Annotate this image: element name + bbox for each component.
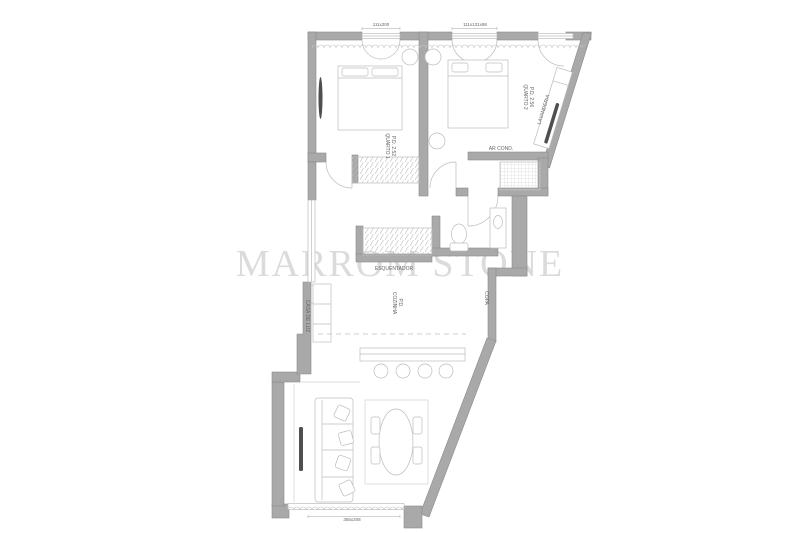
dining-chair bbox=[413, 417, 422, 434]
bedside-table bbox=[429, 133, 445, 149]
label-cozinha-name: COZINHA bbox=[391, 292, 397, 315]
wall-segment bbox=[356, 226, 363, 256]
label-copa: COPA bbox=[483, 291, 489, 305]
living-room-furniture bbox=[294, 382, 428, 502]
dining-chair bbox=[413, 447, 422, 464]
sofa-pillow bbox=[338, 430, 354, 446]
label-casa-de-luz: CASA DE LUZ bbox=[304, 300, 310, 333]
quarto1-furniture bbox=[319, 66, 403, 130]
bar-stool bbox=[396, 364, 410, 378]
wall-segment bbox=[272, 382, 284, 506]
wall-segment bbox=[497, 32, 538, 40]
pillow bbox=[372, 68, 398, 76]
wall-segment bbox=[404, 506, 422, 528]
wall-segment bbox=[308, 162, 316, 200]
closet-quarto1 bbox=[352, 157, 419, 183]
dining-table bbox=[379, 409, 413, 475]
dimension-bottom: 355x208 bbox=[343, 517, 361, 522]
wall-segment bbox=[512, 196, 527, 276]
wall-segment bbox=[308, 153, 326, 162]
label-quarto1-name: QUARTO 1 bbox=[384, 133, 390, 159]
floor-plan-canvas: MARROM STONE bbox=[0, 0, 800, 533]
floor-plan: MARROM STONE bbox=[0, 0, 800, 533]
curtain-strip-bottom bbox=[288, 504, 404, 511]
pillow bbox=[486, 63, 502, 72]
label-esquentador: ESQUENTADOR bbox=[375, 266, 414, 272]
quarto2-furniture bbox=[429, 60, 508, 149]
wall-segment bbox=[456, 188, 468, 196]
kitchen-cabinet bbox=[313, 284, 331, 342]
curtain-circle bbox=[425, 49, 441, 65]
kitchen-furniture bbox=[313, 284, 466, 378]
bar-counter bbox=[360, 348, 465, 361]
toilet-tank bbox=[450, 243, 468, 251]
tv-panel bbox=[299, 427, 303, 471]
dimension-top-left: 111x200 bbox=[373, 22, 390, 27]
wall-segment bbox=[488, 268, 496, 342]
label-quarto1-pd: P.D. 2.52 bbox=[390, 136, 396, 156]
door-arc-quarto2 bbox=[430, 162, 456, 188]
dimension-top-right: 111x131x98 bbox=[463, 22, 487, 27]
dining-chair bbox=[371, 447, 380, 464]
pillow bbox=[452, 63, 468, 72]
door-arc-quarto1 bbox=[326, 162, 352, 188]
wall-segment bbox=[272, 372, 300, 382]
wall-segment bbox=[308, 32, 316, 162]
label-cozinha-pd: P.D. bbox=[397, 298, 403, 307]
closet-esquentador bbox=[363, 228, 432, 255]
bar-stool bbox=[418, 364, 432, 378]
ac-condenser-unit bbox=[500, 162, 540, 190]
curtain-strip-top bbox=[312, 41, 586, 48]
toilet-bowl bbox=[452, 224, 467, 244]
bar-stool bbox=[374, 364, 388, 378]
wall-panel-quarto1 bbox=[319, 77, 323, 119]
label-quarto2-pd: P.D. 2.56 bbox=[528, 87, 534, 107]
label-ar-cond: AR COND. bbox=[489, 146, 513, 152]
sink-counter bbox=[490, 208, 506, 248]
label-quarto2-name: QUARTO 2 bbox=[522, 84, 528, 110]
wall-diagonal-bottom bbox=[420, 338, 496, 517]
curtain-circle bbox=[402, 49, 418, 65]
pillow bbox=[342, 68, 368, 76]
dining-chair bbox=[371, 417, 380, 434]
wall-segment bbox=[468, 152, 548, 160]
bar-stool bbox=[439, 364, 453, 378]
